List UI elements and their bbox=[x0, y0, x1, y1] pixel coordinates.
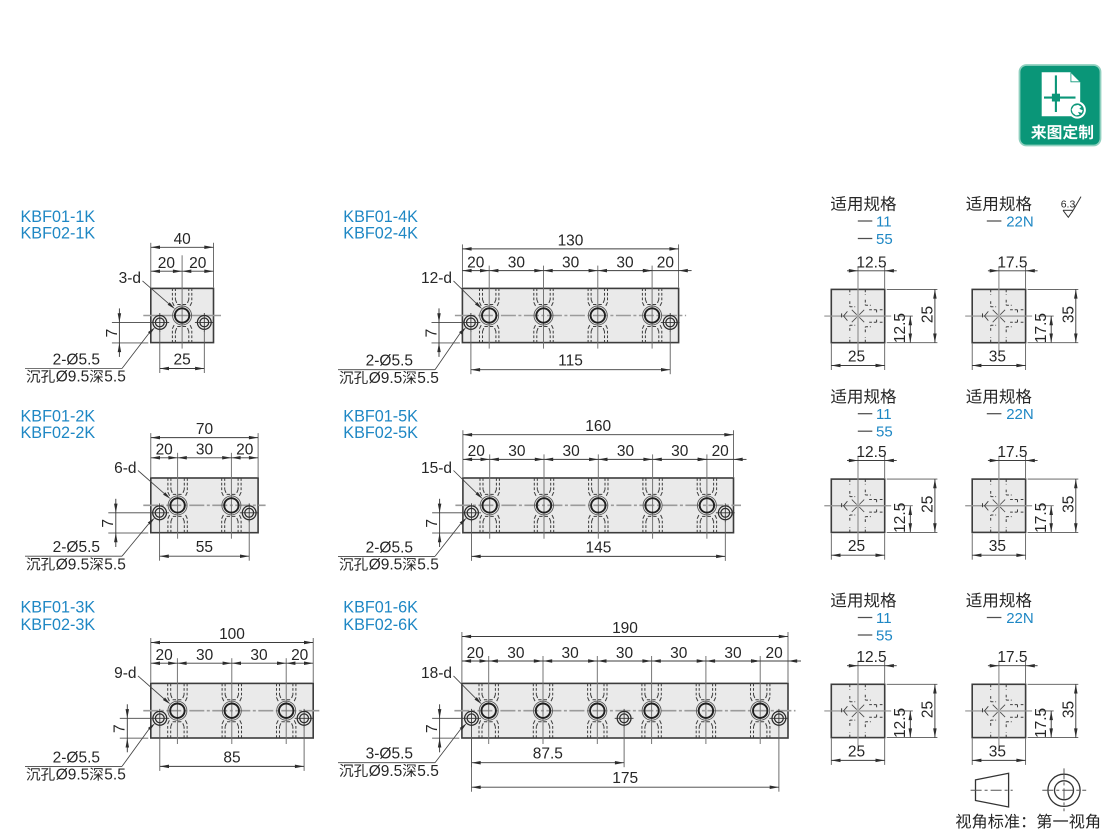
svg-text:12.5: 12.5 bbox=[856, 444, 886, 461]
svg-text:17.5: 17.5 bbox=[1033, 313, 1050, 343]
svg-text:22N: 22N bbox=[1006, 610, 1034, 627]
svg-text:22N: 22N bbox=[1006, 406, 1034, 423]
svg-text:Ø9.5: Ø9.5 bbox=[56, 556, 90, 573]
svg-text:2-Ø5.5: 2-Ø5.5 bbox=[366, 539, 413, 556]
svg-text:20: 20 bbox=[291, 647, 309, 664]
svg-text:7: 7 bbox=[112, 724, 129, 733]
svg-text:20: 20 bbox=[765, 645, 783, 662]
svg-text:9-d: 9-d bbox=[114, 665, 136, 682]
svg-text:20: 20 bbox=[155, 647, 173, 664]
svg-text:30: 30 bbox=[617, 443, 635, 460]
svg-text:5.5: 5.5 bbox=[104, 556, 126, 573]
svg-text:KBF02-3K: KBF02-3K bbox=[21, 616, 96, 634]
svg-text:87.5: 87.5 bbox=[533, 746, 563, 763]
svg-text:20: 20 bbox=[158, 255, 176, 272]
svg-text:5.5: 5.5 bbox=[417, 763, 439, 780]
svg-text:25: 25 bbox=[919, 306, 936, 323]
svg-text:11: 11 bbox=[876, 213, 892, 230]
svg-text:20: 20 bbox=[468, 443, 486, 460]
svg-text:55: 55 bbox=[876, 424, 893, 441]
svg-text:20: 20 bbox=[467, 254, 485, 271]
svg-text:25: 25 bbox=[848, 349, 865, 366]
svg-text:12.5: 12.5 bbox=[892, 313, 909, 343]
svg-text:30: 30 bbox=[250, 647, 268, 664]
svg-text:130: 130 bbox=[558, 232, 584, 249]
svg-text:40: 40 bbox=[174, 231, 192, 248]
svg-text:25: 25 bbox=[848, 538, 865, 555]
svg-text:Ø9.5: Ø9.5 bbox=[56, 767, 90, 784]
svg-text:85: 85 bbox=[223, 749, 240, 766]
svg-text:17.5: 17.5 bbox=[1033, 708, 1050, 738]
svg-text:17.5: 17.5 bbox=[997, 649, 1027, 666]
svg-text:KBF02-6K: KBF02-6K bbox=[343, 616, 418, 634]
svg-text:30: 30 bbox=[562, 443, 580, 460]
svg-text:20: 20 bbox=[156, 442, 174, 459]
svg-text:55: 55 bbox=[876, 627, 893, 644]
svg-text:Ø9.5: Ø9.5 bbox=[369, 763, 403, 780]
svg-text:7: 7 bbox=[104, 329, 121, 338]
svg-text:30: 30 bbox=[616, 645, 634, 662]
svg-text:30: 30 bbox=[670, 645, 688, 662]
svg-text:20: 20 bbox=[467, 645, 485, 662]
svg-text:5.5: 5.5 bbox=[104, 369, 126, 386]
svg-text:190: 190 bbox=[612, 620, 638, 637]
svg-text:Ø9.5: Ø9.5 bbox=[56, 369, 90, 386]
svg-text:55: 55 bbox=[876, 231, 893, 248]
svg-text:11: 11 bbox=[876, 610, 892, 627]
svg-text:30: 30 bbox=[507, 645, 525, 662]
svg-text:6-d: 6-d bbox=[114, 460, 136, 477]
svg-text:KBF01-4K: KBF01-4K bbox=[343, 208, 418, 226]
svg-text:KBF01-3K: KBF01-3K bbox=[21, 598, 96, 616]
svg-text:KBF02-4K: KBF02-4K bbox=[343, 225, 418, 243]
svg-text:35: 35 bbox=[989, 349, 1006, 366]
svg-text:30: 30 bbox=[196, 647, 214, 664]
svg-text:7: 7 bbox=[100, 519, 117, 528]
svg-text:25: 25 bbox=[919, 496, 936, 513]
svg-text:30: 30 bbox=[508, 443, 526, 460]
svg-text:35: 35 bbox=[1060, 306, 1077, 323]
svg-text:15-d: 15-d bbox=[421, 460, 452, 477]
svg-text:35: 35 bbox=[1060, 701, 1077, 718]
svg-text:2-Ø5.5: 2-Ø5.5 bbox=[53, 539, 100, 556]
svg-text:KBF01-2K: KBF01-2K bbox=[21, 408, 96, 426]
svg-text:17.5: 17.5 bbox=[1033, 503, 1050, 533]
svg-text:6.3: 6.3 bbox=[1061, 199, 1076, 211]
svg-text:30: 30 bbox=[196, 442, 214, 459]
svg-text:5.5: 5.5 bbox=[417, 370, 439, 387]
svg-text:3-d: 3-d bbox=[119, 270, 141, 287]
svg-text:Ø9.5: Ø9.5 bbox=[369, 557, 403, 574]
svg-text:30: 30 bbox=[562, 254, 580, 271]
svg-text:2-Ø5.5: 2-Ø5.5 bbox=[53, 749, 100, 766]
svg-text:35: 35 bbox=[989, 538, 1006, 555]
svg-text:12.5: 12.5 bbox=[892, 503, 909, 533]
svg-text:30: 30 bbox=[508, 254, 526, 271]
svg-text:12.5: 12.5 bbox=[856, 254, 886, 271]
svg-text:3-Ø5.5: 3-Ø5.5 bbox=[366, 746, 413, 763]
svg-text:7: 7 bbox=[424, 724, 441, 733]
svg-text:17.5: 17.5 bbox=[997, 254, 1027, 271]
svg-text:35: 35 bbox=[989, 743, 1006, 760]
svg-text:18-d: 18-d bbox=[421, 665, 452, 682]
svg-text:KBF02-2K: KBF02-2K bbox=[21, 424, 96, 442]
svg-text:55: 55 bbox=[196, 539, 213, 556]
svg-text:22N: 22N bbox=[1006, 213, 1034, 230]
svg-text:20: 20 bbox=[657, 254, 675, 271]
svg-text:KBF02-5K: KBF02-5K bbox=[343, 424, 418, 442]
svg-text:30: 30 bbox=[671, 443, 689, 460]
svg-text:175: 175 bbox=[612, 770, 638, 787]
svg-text:KBF01-6K: KBF01-6K bbox=[343, 598, 418, 616]
svg-text:30: 30 bbox=[724, 645, 742, 662]
svg-text:Ø9.5: Ø9.5 bbox=[369, 370, 403, 387]
svg-text:35: 35 bbox=[1060, 496, 1077, 513]
svg-text:KBF02-1K: KBF02-1K bbox=[21, 225, 96, 243]
svg-text:KBF01-1K: KBF01-1K bbox=[21, 208, 96, 226]
svg-text:11: 11 bbox=[876, 406, 892, 423]
svg-text:20: 20 bbox=[236, 442, 254, 459]
svg-text:12.5: 12.5 bbox=[892, 708, 909, 738]
svg-text:70: 70 bbox=[196, 421, 214, 438]
svg-text:7: 7 bbox=[423, 329, 440, 338]
svg-text:17.5: 17.5 bbox=[997, 444, 1027, 461]
svg-text:160: 160 bbox=[585, 418, 611, 435]
svg-text:12-d: 12-d bbox=[421, 270, 452, 287]
svg-text:100: 100 bbox=[219, 626, 245, 643]
svg-text:7: 7 bbox=[424, 519, 441, 528]
svg-text:145: 145 bbox=[585, 539, 611, 556]
svg-text:30: 30 bbox=[561, 645, 579, 662]
svg-text:5.5: 5.5 bbox=[417, 557, 439, 574]
svg-text:25: 25 bbox=[173, 352, 190, 369]
svg-text:5.5: 5.5 bbox=[104, 767, 126, 784]
svg-text:25: 25 bbox=[919, 701, 936, 718]
svg-text:2-Ø5.5: 2-Ø5.5 bbox=[53, 352, 100, 369]
svg-text:KBF01-5K: KBF01-5K bbox=[343, 408, 418, 426]
svg-text:12.5: 12.5 bbox=[856, 649, 886, 666]
svg-text:30: 30 bbox=[616, 254, 634, 271]
svg-text:25: 25 bbox=[848, 743, 865, 760]
svg-text:20: 20 bbox=[712, 443, 730, 460]
svg-text:20: 20 bbox=[189, 255, 207, 272]
svg-text:2-Ø5.5: 2-Ø5.5 bbox=[366, 353, 413, 370]
svg-text:115: 115 bbox=[558, 353, 583, 370]
